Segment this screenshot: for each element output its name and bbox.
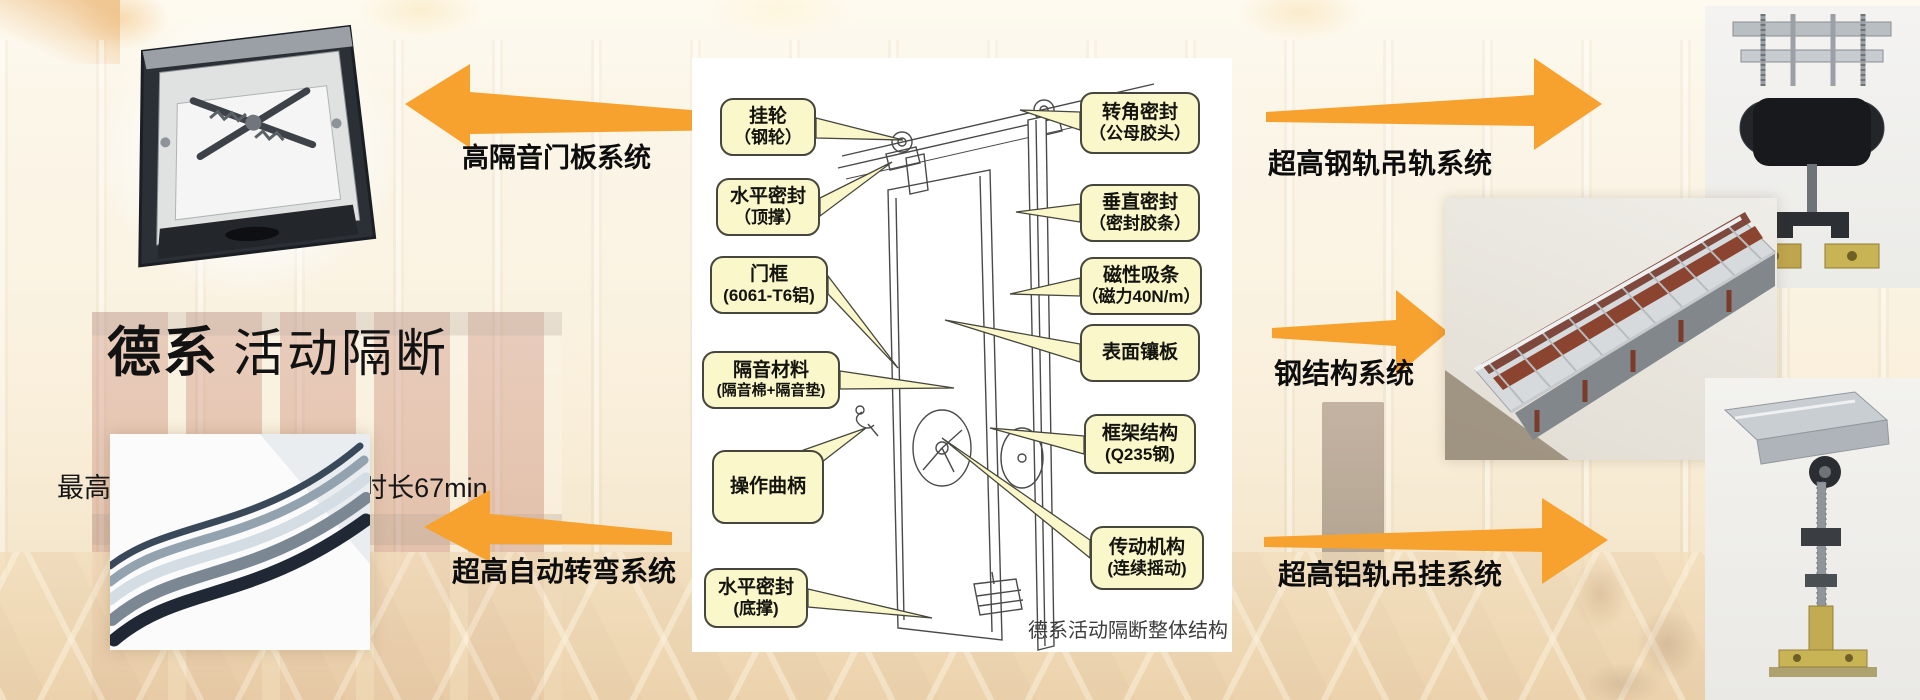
diagram-label-crank: 操作曲柄	[712, 450, 824, 524]
label-line: (6061-T6铝)	[723, 286, 815, 307]
label-line: 框架结构	[1102, 422, 1178, 445]
label-line: 门框	[750, 263, 788, 286]
diagram-caption: 德系活动隔断整体结构	[1018, 614, 1228, 643]
diagram-label-bottom-seal: 水平密封 (底撑)	[704, 568, 808, 628]
label-line: （钢轮）	[734, 128, 802, 149]
door-top-mechanism-illustration	[96, 6, 400, 300]
label-line: (底撑)	[733, 599, 778, 620]
label-line: 隔音材料	[733, 359, 809, 382]
callout-alu-rail-system: 超高铝轨吊挂系统	[1278, 553, 1502, 593]
label-line: （顶撑）	[734, 208, 802, 229]
label-line: (Q235钢)	[1105, 445, 1175, 466]
label-line: 操作曲柄	[730, 475, 806, 498]
label-line: 表面镶板	[1102, 341, 1178, 364]
label-line: （公母胶头）	[1089, 124, 1191, 145]
label-line: (隔音棉+隔音垫)	[717, 382, 826, 400]
label-line: 传动机构	[1109, 536, 1185, 559]
label-line: 水平密封	[718, 576, 794, 599]
callout-steel-structure-system: 钢结构系统	[1274, 352, 1414, 392]
diagram-label-surface-panel: 表面镶板	[1080, 324, 1200, 382]
aluminium-trolley-illustration	[1705, 378, 1920, 700]
diagram-label-transmission: 传动机构 (连续摇动)	[1090, 526, 1204, 590]
label-line: （磁力40N/m）	[1081, 287, 1200, 308]
partition-structure-diagram: 挂轮 （钢轮） 水平密封 （顶撑） 门框 (6061-T6铝) 隔音材料 (隔音…	[692, 58, 1232, 652]
callout-steel-rail-system: 超高钢轨吊轨系统	[1268, 142, 1492, 182]
partition-infographic: 德系 活动隔断 最高隔音系数56db，防火时长67min 高隔音门板系统 超高自…	[0, 0, 1920, 700]
diagram-label-vertical-seal: 垂直密封 （密封胶条）	[1080, 184, 1200, 242]
label-line: 垂直密封	[1102, 191, 1178, 214]
title-brand: 德系	[107, 308, 219, 387]
label-line: 水平密封	[730, 185, 806, 208]
label-line: 转角密封	[1102, 101, 1178, 124]
aluminium-trolley-photo	[1705, 378, 1920, 700]
title-product: 活动隔断	[233, 312, 449, 386]
label-line: 挂轮	[749, 105, 787, 128]
label-line: （密封胶条）	[1089, 214, 1191, 235]
page-title: 德系 活动隔断	[107, 308, 449, 387]
diagram-label-frame-structure: 框架结构 (Q235钢)	[1084, 414, 1196, 474]
diagram-label-door-frame: 门框 (6061-T6铝)	[710, 256, 828, 314]
callout-door-panel-system: 高隔音门板系统	[462, 136, 651, 175]
diagram-label-hanging-wheel: 挂轮 （钢轮）	[720, 98, 816, 156]
label-line: (连续摇动)	[1107, 559, 1186, 580]
callout-auto-turn-system: 超高自动转弯系统	[452, 550, 676, 590]
label-line: 磁性吸条	[1103, 264, 1179, 287]
door-top-mechanism-photo	[96, 6, 400, 300]
diagram-label-top-seal: 水平密封 （顶撑）	[716, 178, 820, 236]
curved-track-photo	[110, 434, 370, 650]
diagram-label-corner-seal: 转角密封 （公母胶头）	[1080, 92, 1200, 154]
diagram-label-sound-insulation: 隔音材料 (隔音棉+隔音垫)	[702, 351, 840, 409]
curved-track-illustration	[110, 434, 370, 650]
diagram-label-magnetic-strip: 磁性吸条 （磁力40N/m）	[1080, 257, 1202, 315]
